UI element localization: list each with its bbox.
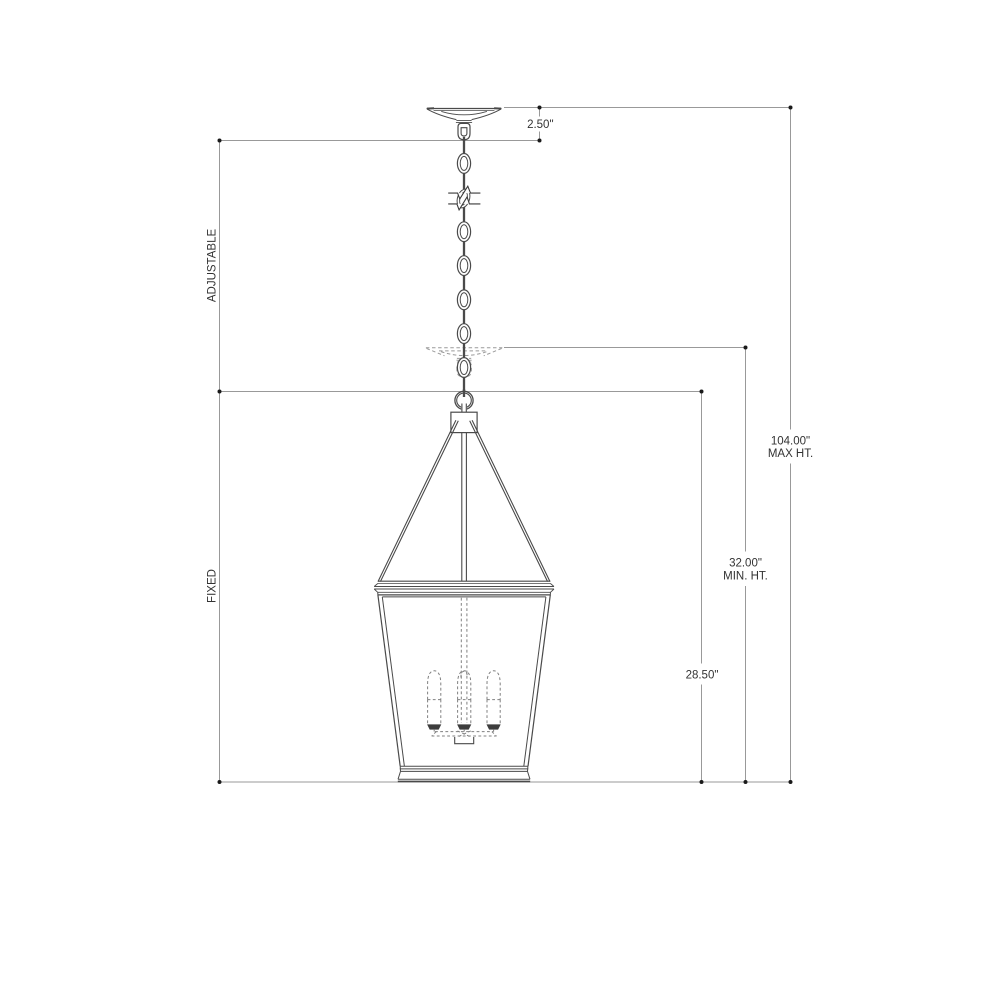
svg-text:28.50": 28.50": [686, 670, 719, 682]
svg-text:32.00": 32.00": [729, 558, 762, 570]
svg-text:104.00": 104.00": [771, 436, 810, 448]
svg-text:ADJUSTABLE: ADJUSTABLE: [207, 229, 219, 303]
svg-text:FIXED: FIXED: [207, 569, 219, 603]
svg-text:MIN. HT.: MIN. HT.: [723, 571, 768, 583]
svg-text:MAX HT.: MAX HT.: [768, 448, 813, 460]
svg-text:2.50": 2.50": [527, 119, 553, 131]
